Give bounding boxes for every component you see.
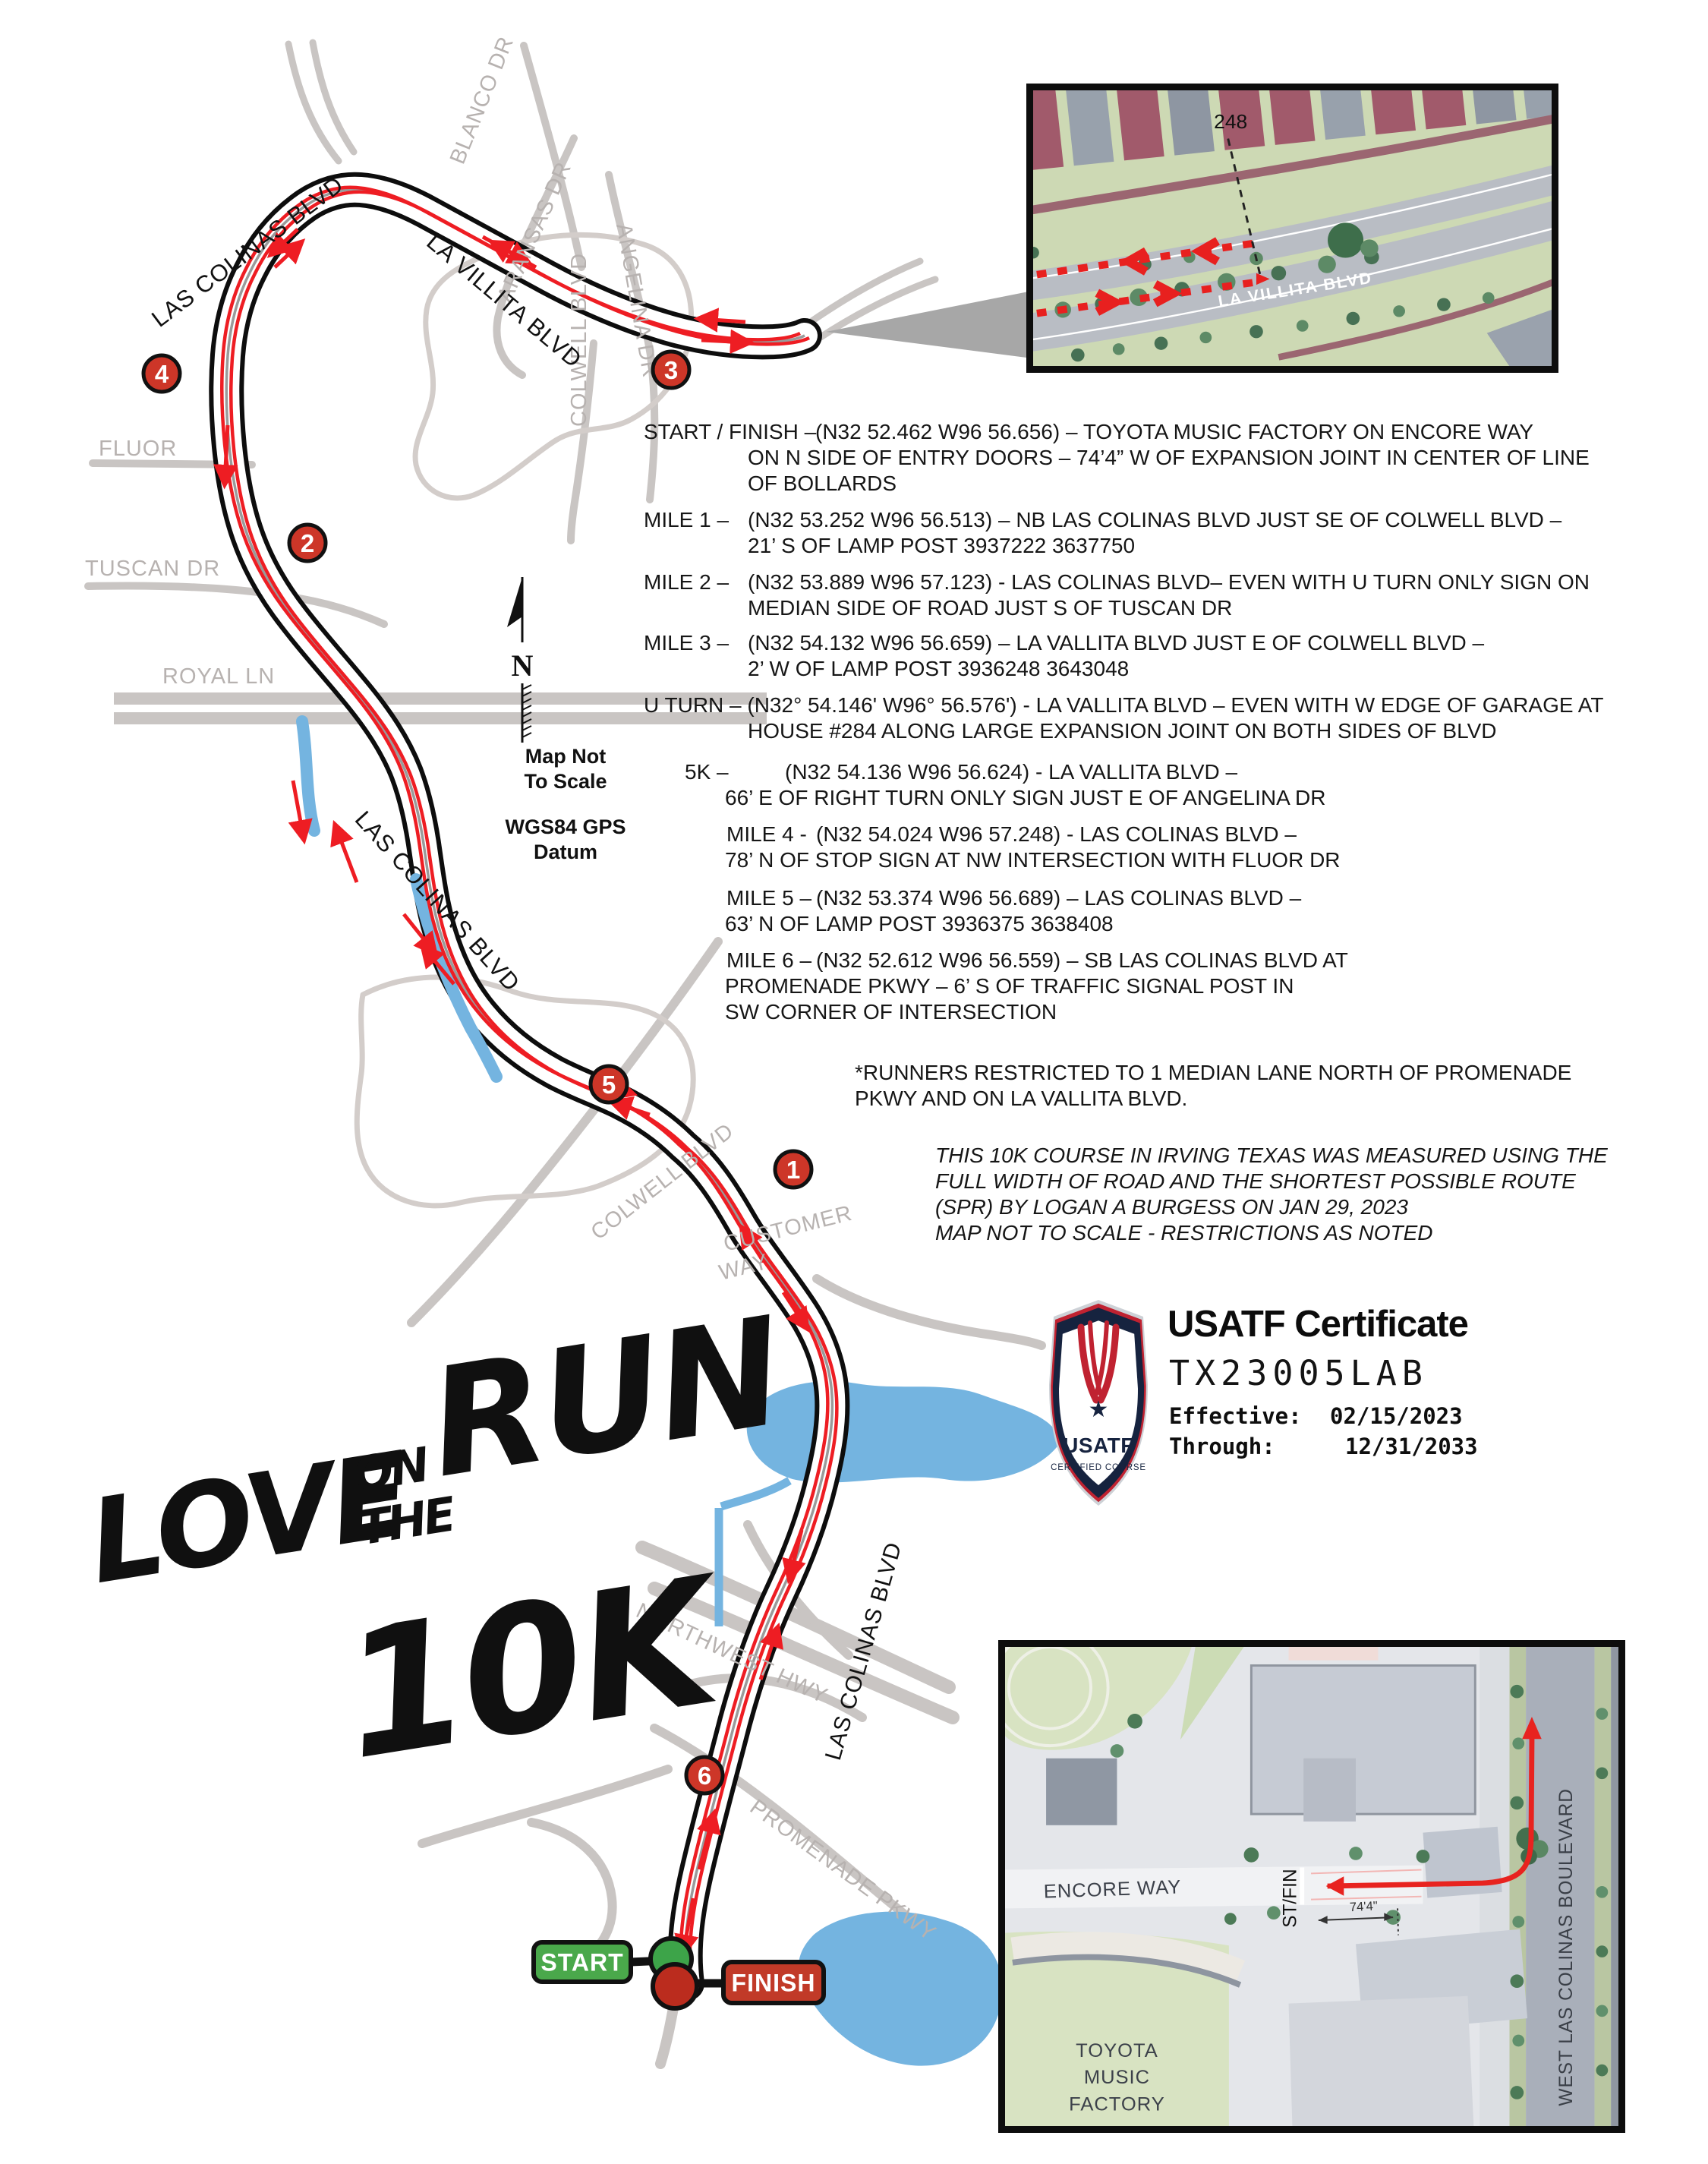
note-mile-3: MILE 3 – (N32 54.132 W96 56.659) – LA VA… <box>644 630 1484 682</box>
street-label-tuscan: TUSCAN DR <box>85 557 220 581</box>
datum-label-2: Datum <box>534 841 597 863</box>
mile-marker-2: 2 <box>289 525 326 561</box>
street-label-blanco: BLANCO DR <box>446 33 518 167</box>
datum-label: WGS84 GPS <box>505 815 626 838</box>
map-not-to-scale-2: To Scale <box>524 770 607 793</box>
svg-text:START: START <box>540 1949 623 1976</box>
usatf-shield-sub: CERTIFIED COURSE <box>1051 1463 1146 1472</box>
note-certification: THIS 10K COURSE IN IRVING TEXAS WAS MEAS… <box>935 1143 1608 1246</box>
usatf-star-icon: ★ <box>1089 1397 1109 1422</box>
svg-text:5: 5 <box>602 1071 616 1099</box>
note-5k: 5K – (N32 54.136 W96 56.624) - LA VALLIT… <box>685 759 1325 811</box>
mile-marker-6: 6 <box>686 1757 723 1793</box>
note-start-finish-label: START / FINISH – <box>644 419 816 445</box>
street-label-royal: ROYAL LN <box>162 664 275 689</box>
mile-marker-4: 4 <box>143 355 180 392</box>
map-not-to-scale: Map Not <box>525 745 606 768</box>
svg-text:1: 1 <box>786 1156 800 1184</box>
finish-dot <box>653 1964 697 2008</box>
logo-10k: 10K <box>330 1541 726 1800</box>
north-label: N <box>512 648 534 683</box>
house-number: 248 <box>1214 110 1247 133</box>
inset-callout-wedge <box>826 291 1032 358</box>
west-las-colinas-label: WEST LAS COLINAS BOULEVARD <box>1556 1788 1577 2106</box>
usatf-certificate-code: TX23005LAB <box>1169 1353 1428 1393</box>
svg-text:3: 3 <box>664 356 678 384</box>
stfin-label: ST/FIN <box>1280 1869 1300 1927</box>
svg-text:74'4": 74'4" <box>1349 1898 1378 1914</box>
start-finish-inset-map: ENCORE WAY ST/FIN 74'4" TOYOTA MUSIC FAC… <box>998 1640 1625 2133</box>
note-mile-5: MILE 5 – (N32 53.374 W96 56.689) – LAS C… <box>725 885 1301 937</box>
note-mile-2: MILE 2 – (N32 53.889 W96 57.123) - LAS C… <box>644 569 1590 621</box>
start-finish: START FINISH <box>534 1938 824 2008</box>
svg-text:6: 6 <box>698 1762 711 1790</box>
note-mile-6: MILE 6 – (N32 52.612 W96 56.559) – SB LA… <box>725 948 1348 1025</box>
note-mile-1: MILE 1 – (N32 53.252 W96 56.513) – NB LA… <box>644 507 1561 559</box>
usatf-certificate-title: USATF Certificate <box>1168 1303 1468 1345</box>
usatf-effective: Effective: 02/15/2023 <box>1169 1403 1302 1429</box>
start-badge: START <box>534 1942 631 1982</box>
svg-text:FINISH: FINISH <box>732 1970 816 1997</box>
street-label-fluor: FLUOR <box>99 437 177 461</box>
usatf-through: Through: 12/31/2033 <box>1169 1434 1275 1459</box>
course-map-page: BLANCO DR ARANSAS DR ANGELINA DR COLWELL… <box>0 0 1708 2164</box>
note-start-finish: START / FINISH – (N32 52.462 W96 56.656)… <box>644 419 1590 497</box>
toyota-label-1: TOYOTA <box>1076 2040 1158 2061</box>
note-u-turn: U TURN – (N32° 54.146' W96° 56.576') - L… <box>644 692 1603 744</box>
uturn-inset-map: 248 LA VILLITA BLVD <box>1026 84 1558 373</box>
svg-text:4: 4 <box>155 360 169 388</box>
note-restrictions: *RUNNERS RESTRICTED TO 1 MEDIAN LANE NOR… <box>855 1060 1571 1112</box>
svg-text:2: 2 <box>301 529 314 557</box>
toyota-label-3: FACTORY <box>1069 2094 1165 2115</box>
logo-run: RUN <box>418 1285 792 1511</box>
usatf-shield-org: USATF <box>1063 1434 1134 1457</box>
finish-badge: FINISH <box>723 1962 824 2003</box>
usatf-shield: ★ USATF CERTIFIED COURSE <box>1042 1295 1155 1512</box>
toyota-label-2: MUSIC <box>1084 2067 1150 2088</box>
mile-marker-3: 3 <box>653 352 689 388</box>
note-mile-4: MILE 4 - (N32 54.024 W96 57.248) - LAS C… <box>725 822 1341 873</box>
mile-marker-1: 1 <box>775 1151 811 1188</box>
mile-marker-5: 5 <box>591 1066 627 1103</box>
